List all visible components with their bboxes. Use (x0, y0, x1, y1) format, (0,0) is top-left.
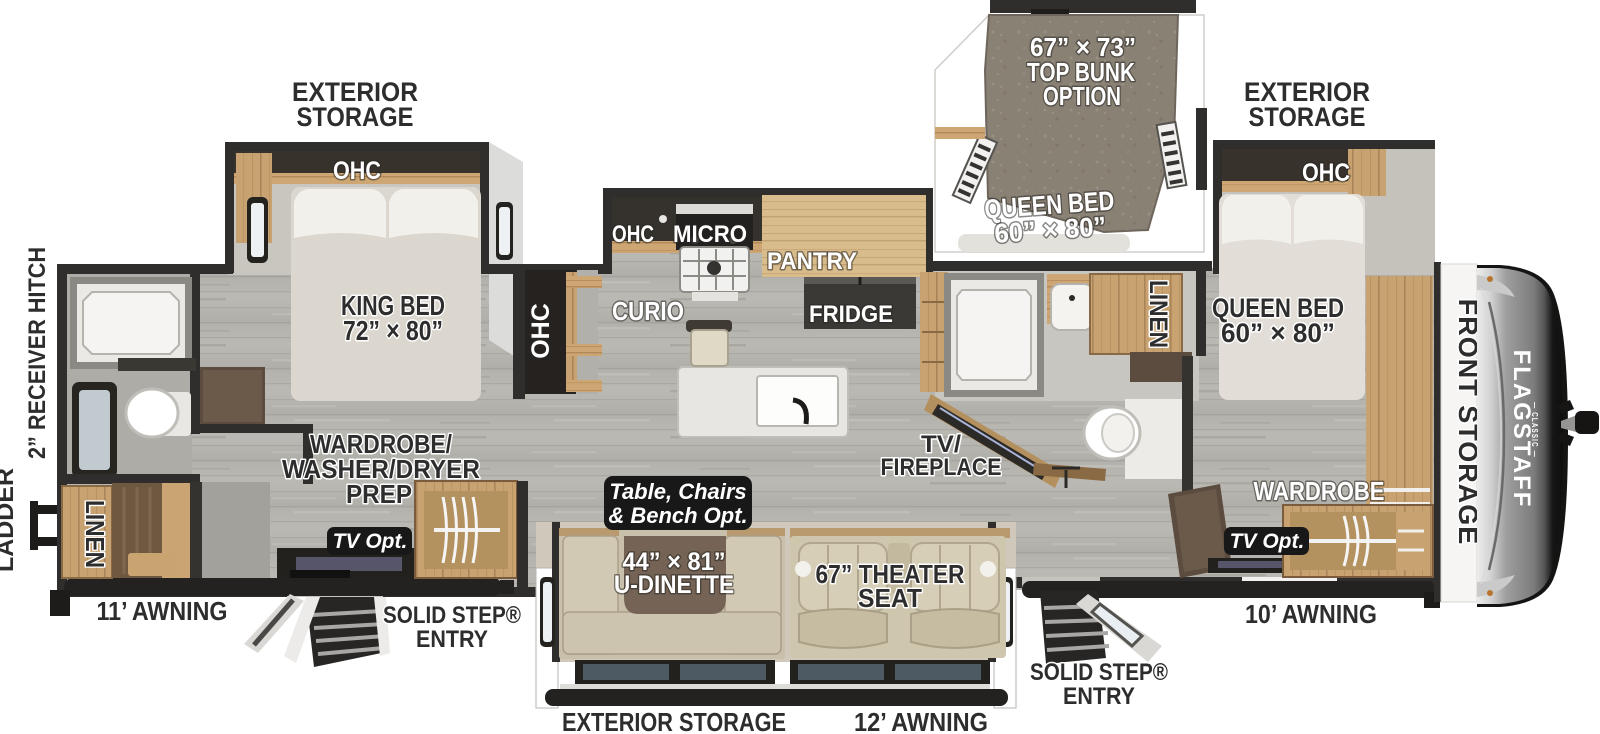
svg-text:SEAT: SEAT (858, 583, 922, 613)
svg-text:TV Opt.: TV Opt. (1230, 530, 1305, 553)
svg-text:LINEN: LINEN (1144, 280, 1172, 348)
svg-text:11’ AWNING: 11’ AWNING (97, 596, 228, 626)
svg-text:12’ AWNING: 12’ AWNING (854, 707, 988, 734)
svg-text:FRIDGE: FRIDGE (809, 301, 893, 328)
svg-text:FIREPLACE: FIREPLACE (881, 454, 1002, 481)
svg-text:60” × 80”: 60” × 80” (1221, 318, 1335, 348)
svg-text:PANTRY: PANTRY (767, 248, 857, 275)
svg-text:ENTRY: ENTRY (1063, 683, 1135, 710)
svg-text:OPTION: OPTION (1043, 81, 1121, 111)
svg-text:72” × 80”: 72” × 80” (343, 315, 443, 346)
svg-text:LINEN: LINEN (80, 500, 110, 568)
svg-text:LADDER: LADDER (0, 468, 19, 572)
svg-text:PREP: PREP (346, 479, 412, 509)
svg-text:EXTERIOR STORAGE: EXTERIOR STORAGE (562, 707, 786, 734)
svg-text:OHC: OHC (612, 221, 654, 248)
svg-text:10’ AWNING: 10’ AWNING (1245, 599, 1377, 629)
svg-text:— CLASSIC —: — CLASSIC — (1530, 402, 1539, 458)
svg-text:OHC: OHC (527, 303, 555, 359)
svg-text:STORAGE: STORAGE (1249, 102, 1366, 132)
svg-text:STORAGE: STORAGE (297, 102, 414, 132)
svg-text:MICRO: MICRO (673, 221, 747, 248)
svg-text:WARDROBE: WARDROBE (1254, 476, 1385, 506)
svg-text:OHC: OHC (333, 157, 381, 185)
svg-text:2” RECEIVER HITCH: 2” RECEIVER HITCH (24, 247, 51, 459)
svg-text:ENTRY: ENTRY (416, 626, 488, 653)
svg-text:& Bench Opt.: & Bench Opt. (608, 503, 747, 528)
svg-text:U-DINETTE: U-DINETTE (614, 571, 734, 599)
svg-text:SOLID STEP®: SOLID STEP® (1030, 659, 1168, 686)
svg-text:Table, Chairs: Table, Chairs (609, 479, 746, 504)
svg-text:TV Opt.: TV Opt. (333, 530, 408, 553)
svg-text:CURIO: CURIO (612, 296, 684, 326)
svg-text:OHC: OHC (1302, 159, 1350, 187)
svg-text:SOLID STEP®: SOLID STEP® (383, 602, 521, 629)
